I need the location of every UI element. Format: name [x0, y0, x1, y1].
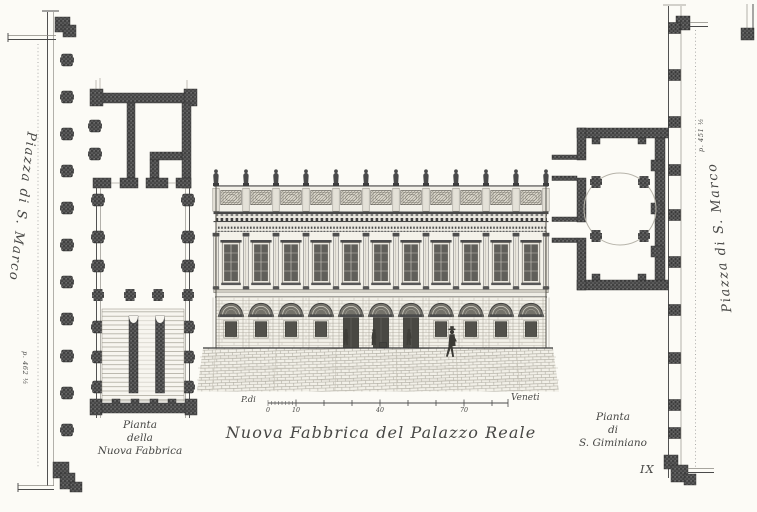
- right-wall-strip: [663, 4, 754, 485]
- right-plan-caption-line-1: Pianta: [564, 411, 662, 424]
- palazzo-elevation: [213, 169, 550, 348]
- engraving-plate: Nuova Fabbrica del Palazzo Reale Pianta …: [0, 0, 757, 512]
- left-plan-caption: Pianta della Nuova Fabbrica: [86, 419, 194, 457]
- main-caption: Nuova Fabbrica del Palazzo Reale: [221, 423, 541, 442]
- scale-tick-10: 10: [290, 407, 302, 414]
- right-plan-caption-line-3: S. Giminiano: [564, 437, 662, 450]
- left-plan-caption-line-2: della: [86, 432, 194, 445]
- pavement: [197, 348, 559, 392]
- scale-right-label: Veneti: [511, 393, 540, 403]
- scale-tick-40: 40: [374, 407, 386, 414]
- scale-left-label: P.di: [241, 395, 256, 405]
- left-plan-caption-line-3: Nuova Fabbrica: [86, 445, 194, 458]
- right-plan-caption-line-2: di: [564, 424, 662, 437]
- scale-bar: [268, 399, 508, 407]
- scale-tick-70: 70: [458, 407, 470, 414]
- scale-tick-0: 0: [262, 407, 274, 414]
- right-plan-caption: Pianta di S. Giminiano: [564, 411, 662, 449]
- san-giminiano-plan: [552, 128, 668, 290]
- right-margin-measure: p. 451 ½: [697, 108, 705, 162]
- nuova-fabbrica-plan: [88, 78, 197, 418]
- plate-number: IX: [640, 462, 655, 476]
- left-plan-caption-line-1: Pianta: [86, 419, 194, 432]
- left-margin-measure: p. 462 ½: [21, 341, 29, 395]
- street-block: [380, 343, 387, 348]
